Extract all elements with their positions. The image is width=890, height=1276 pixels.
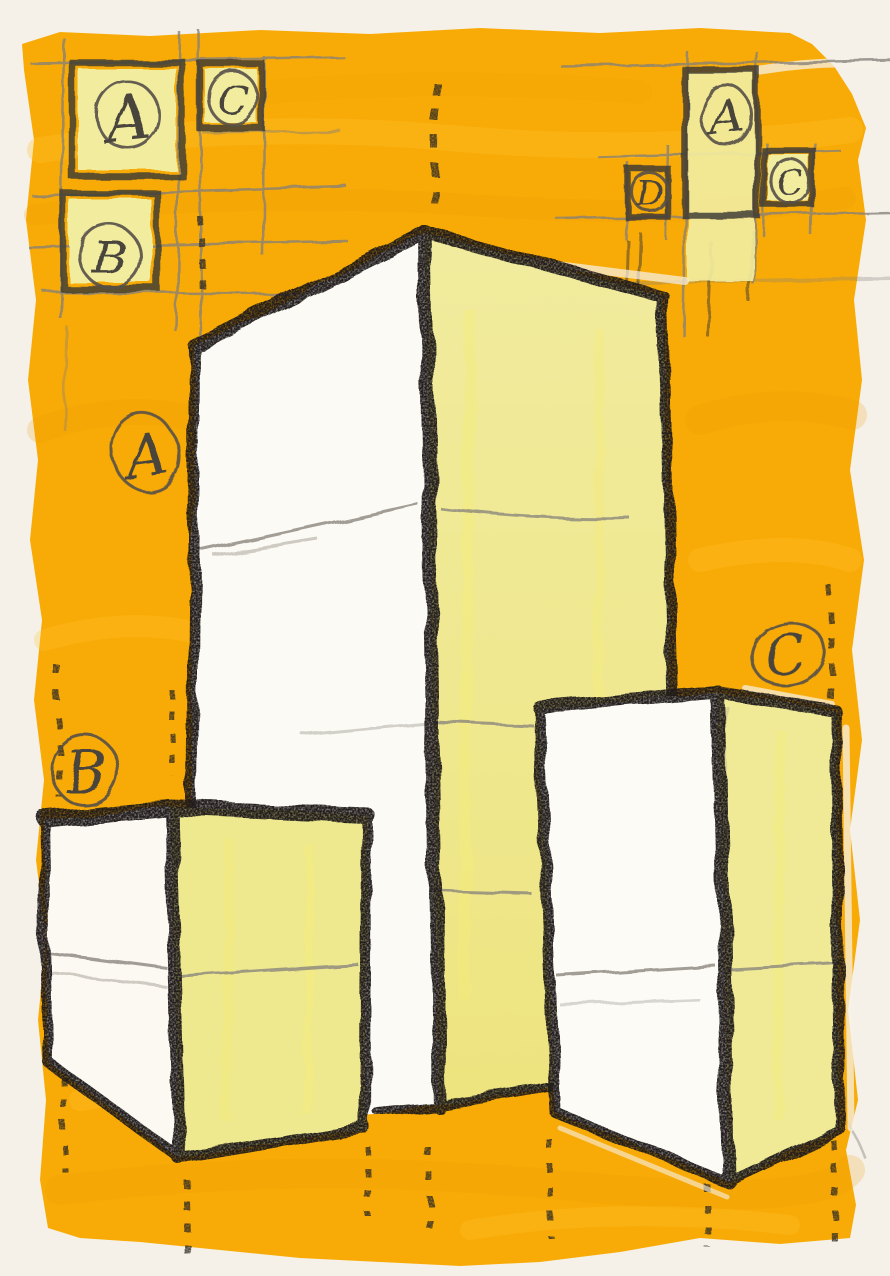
sketch-canvas: A C B A D C A B C	[0, 0, 890, 1276]
mark-letter-top-right-c: C	[777, 163, 803, 203]
box-c	[539, 692, 840, 1183]
label-volume-c: C	[761, 622, 809, 689]
mark-letter-top-right-d: D	[635, 174, 663, 214]
box-c-left-face	[539, 692, 729, 1181]
mark-letter-top-left-b: B	[92, 231, 127, 285]
box-b-front-face	[170, 806, 368, 1158]
label-volume-b: B	[65, 741, 107, 806]
mark-letter-top-left-c: C	[218, 78, 249, 124]
sketch-page: A C B A D C A B C	[0, 0, 890, 1276]
